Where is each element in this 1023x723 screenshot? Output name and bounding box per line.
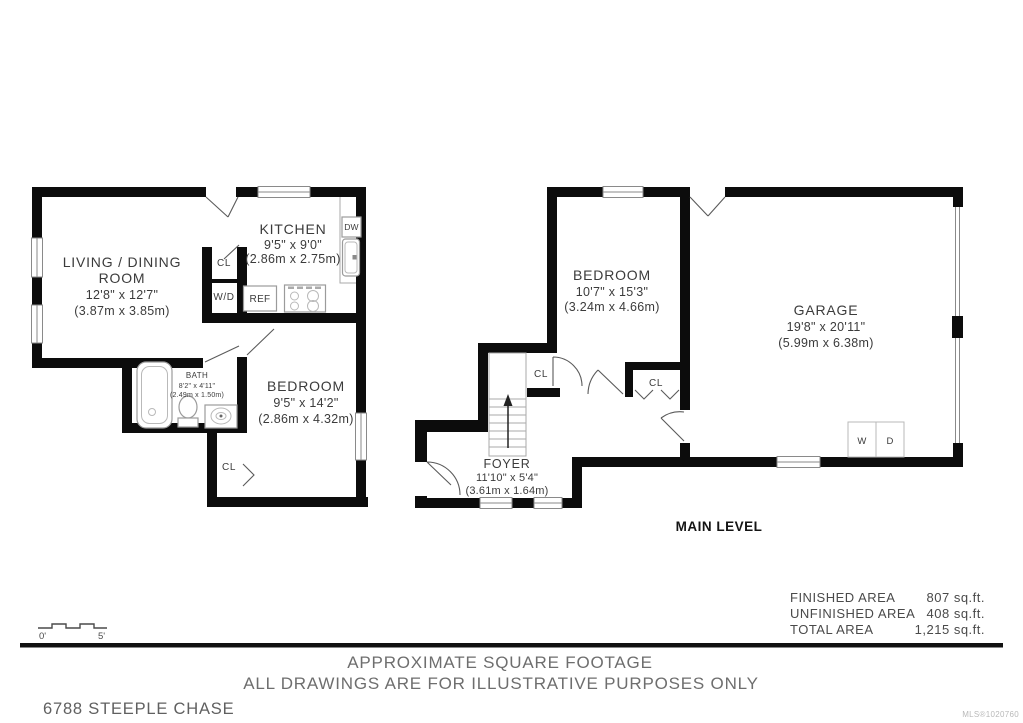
- living-room-name: LIVING / DINING: [63, 254, 182, 270]
- bedroom-main-name: BEDROOM: [573, 267, 651, 283]
- living-room-name2: ROOM: [99, 270, 146, 286]
- closet-label: CL: [217, 258, 231, 269]
- foyer-imperial: 11'10" x 5'4": [476, 472, 538, 484]
- kitchen-imperial: 9'5" x 9'0": [264, 238, 322, 252]
- kitchen-sink-icon: [343, 239, 360, 276]
- floorplan-page: LIVING / DINING ROOM 12'8" x 12'7" (3.87…: [0, 0, 1023, 723]
- scale-bar-line: [38, 624, 107, 628]
- bedroom-closet-bifold: [243, 464, 254, 486]
- unfinished-area-label: UNFINISHED AREA: [790, 606, 915, 621]
- garage-imperial: 19'8" x 20'11": [787, 320, 866, 334]
- window: [258, 187, 310, 198]
- bedroom-door-swing: [588, 370, 623, 394]
- closet2-label: CL: [649, 378, 663, 389]
- floorplan-drawing: LIVING / DINING ROOM 12'8" x 12'7" (3.87…: [0, 0, 1023, 723]
- bedroom-closet-label: CL: [222, 462, 236, 473]
- address-label: 6788 STEEPLE CHASE: [43, 700, 234, 718]
- footer-line1: APPROXIMATE SQUARE FOOTAGE: [347, 653, 652, 672]
- front-entry-door-swing: [427, 462, 460, 495]
- closet1-label: CL: [534, 369, 548, 380]
- scale-start-label: 0': [39, 631, 46, 642]
- staircase-icon: [489, 353, 526, 456]
- level-label: MAIN LEVEL: [676, 519, 763, 534]
- bath-door-swing: [205, 346, 239, 362]
- dryer-label: D: [886, 436, 893, 447]
- stove-icon: [285, 285, 326, 312]
- bedroom-door-swing: [247, 329, 274, 355]
- living-room-metric: (3.87m x 3.85m): [74, 304, 170, 318]
- stairs-up-arrow: [504, 394, 513, 406]
- scale-end-label: 5': [98, 631, 105, 642]
- total-area-value: 1,215 sq.ft.: [915, 622, 985, 637]
- garage-entry-door-swing: [690, 197, 725, 216]
- dishwasher-label: DW: [344, 222, 359, 232]
- footer-line2: ALL DRAWINGS ARE FOR ILLUSTRATIVE PURPOS…: [243, 674, 759, 693]
- bedroom-left-metric: (2.86m x 4.32m): [258, 412, 354, 426]
- garage-interior-door-swing: [661, 412, 684, 441]
- washer-dryer-label: W/D: [213, 292, 234, 303]
- window: [480, 498, 512, 509]
- bedroom-left-imperial: 9'5" x 14'2": [273, 396, 338, 410]
- bedroom-main-metric: (3.24m x 4.66m): [564, 300, 660, 314]
- foyer-name: FOYER: [483, 457, 530, 471]
- area-table: FINISHED AREA 807 sq.ft. UNFINISHED AREA…: [790, 590, 985, 637]
- main-floor-plan: BEDROOM 10'7" x 15'3" (3.24m x 4.66m) GA…: [415, 187, 963, 535]
- mls-number: MLS®1020760: [962, 710, 1019, 719]
- closet-door-swing: [224, 245, 239, 259]
- closet1-door-swing: [553, 357, 582, 386]
- left-floor-plan: LIVING / DINING ROOM 12'8" x 12'7" (3.87…: [32, 187, 369, 508]
- window: [356, 413, 367, 460]
- fridge-label: REF: [250, 294, 271, 305]
- washer-label: W: [857, 436, 866, 447]
- window: [534, 498, 562, 509]
- total-area-label: TOTAL AREA: [790, 622, 874, 637]
- kitchen-name: KITCHEN: [259, 221, 326, 237]
- window: [603, 187, 643, 198]
- bedroom-main-imperial: 10'7" x 15'3": [576, 285, 648, 299]
- garage-metric: (5.99m x 6.38m): [778, 336, 874, 350]
- unfinished-area-value: 408 sq.ft.: [927, 606, 985, 621]
- window: [32, 238, 43, 277]
- window: [777, 457, 820, 468]
- bath-name: BATH: [186, 371, 208, 380]
- bath-imperial: 8'2" x 4'11": [179, 383, 216, 390]
- bath-metric: (2.49m x 1.50m): [170, 392, 224, 399]
- window: [32, 305, 43, 343]
- bathtub-icon: [137, 362, 172, 428]
- sink-icon: [205, 405, 237, 428]
- finished-area-label: FINISHED AREA: [790, 590, 895, 605]
- foyer-metric: (3.61m x 1.64m): [465, 485, 548, 497]
- closet2-bifold: [635, 390, 679, 399]
- toilet-icon: [178, 396, 198, 427]
- footer-divider: [20, 643, 1003, 648]
- bedroom-left-name: BEDROOM: [267, 378, 345, 394]
- living-room-imperial: 12'8" x 12'7": [86, 288, 158, 302]
- kitchen-metric: (2.86m x 2.75m): [245, 252, 341, 266]
- garage-name: GARAGE: [794, 302, 859, 318]
- finished-area-value: 807 sq.ft.: [927, 590, 985, 605]
- washer-dryer-icons: [848, 422, 904, 457]
- footer: APPROXIMATE SQUARE FOOTAGE ALL DRAWINGS …: [20, 643, 1019, 719]
- scale-bar: 0' 5': [38, 624, 107, 642]
- entry-door-swing: [206, 197, 238, 217]
